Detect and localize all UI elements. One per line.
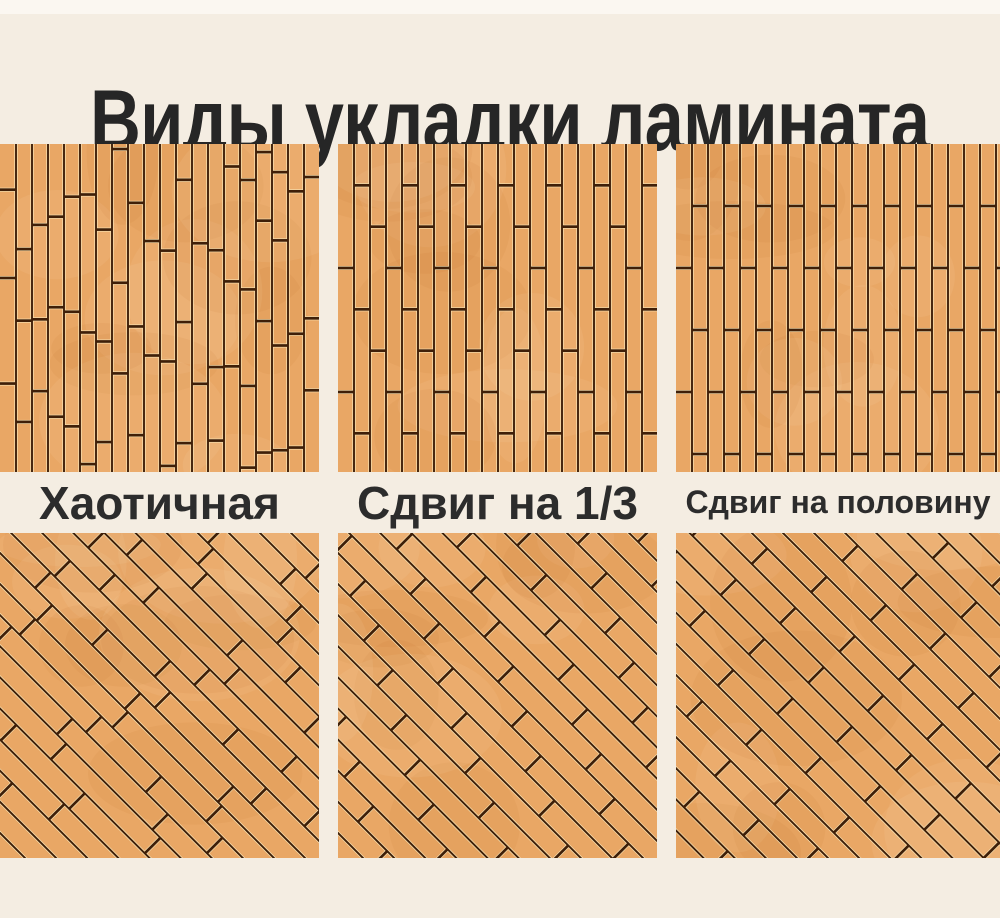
panel-shift-half-vertical [676, 144, 1000, 472]
laminate-pattern-chaotic-diagonal [0, 533, 319, 858]
panel-chaotic-diagonal [0, 533, 319, 858]
panel-shift-third-diagonal [338, 533, 657, 858]
label-shift-third: Сдвиг на 1/3 [338, 472, 657, 533]
laminate-pattern-chaotic-vertical [0, 144, 319, 472]
panel-shift-third-vertical [338, 144, 657, 472]
laminate-pattern-shift-third-diagonal [338, 533, 657, 858]
laminate-pattern-shift-half-diagonal [676, 533, 1000, 858]
laminate-pattern-shift-half-vertical [676, 144, 1000, 472]
label-chaotic: Хаотичная [0, 472, 319, 533]
panel-chaotic-vertical [0, 144, 319, 472]
laminate-infographic: Виды укладки ламината Хаотичная Сдвиг на… [0, 0, 1000, 918]
top-strip-divider [0, 0, 1000, 14]
label-shift-half: Сдвиг на половину [676, 472, 1000, 533]
panel-shift-half-diagonal [676, 533, 1000, 858]
laminate-pattern-shift-third-vertical [338, 144, 657, 472]
